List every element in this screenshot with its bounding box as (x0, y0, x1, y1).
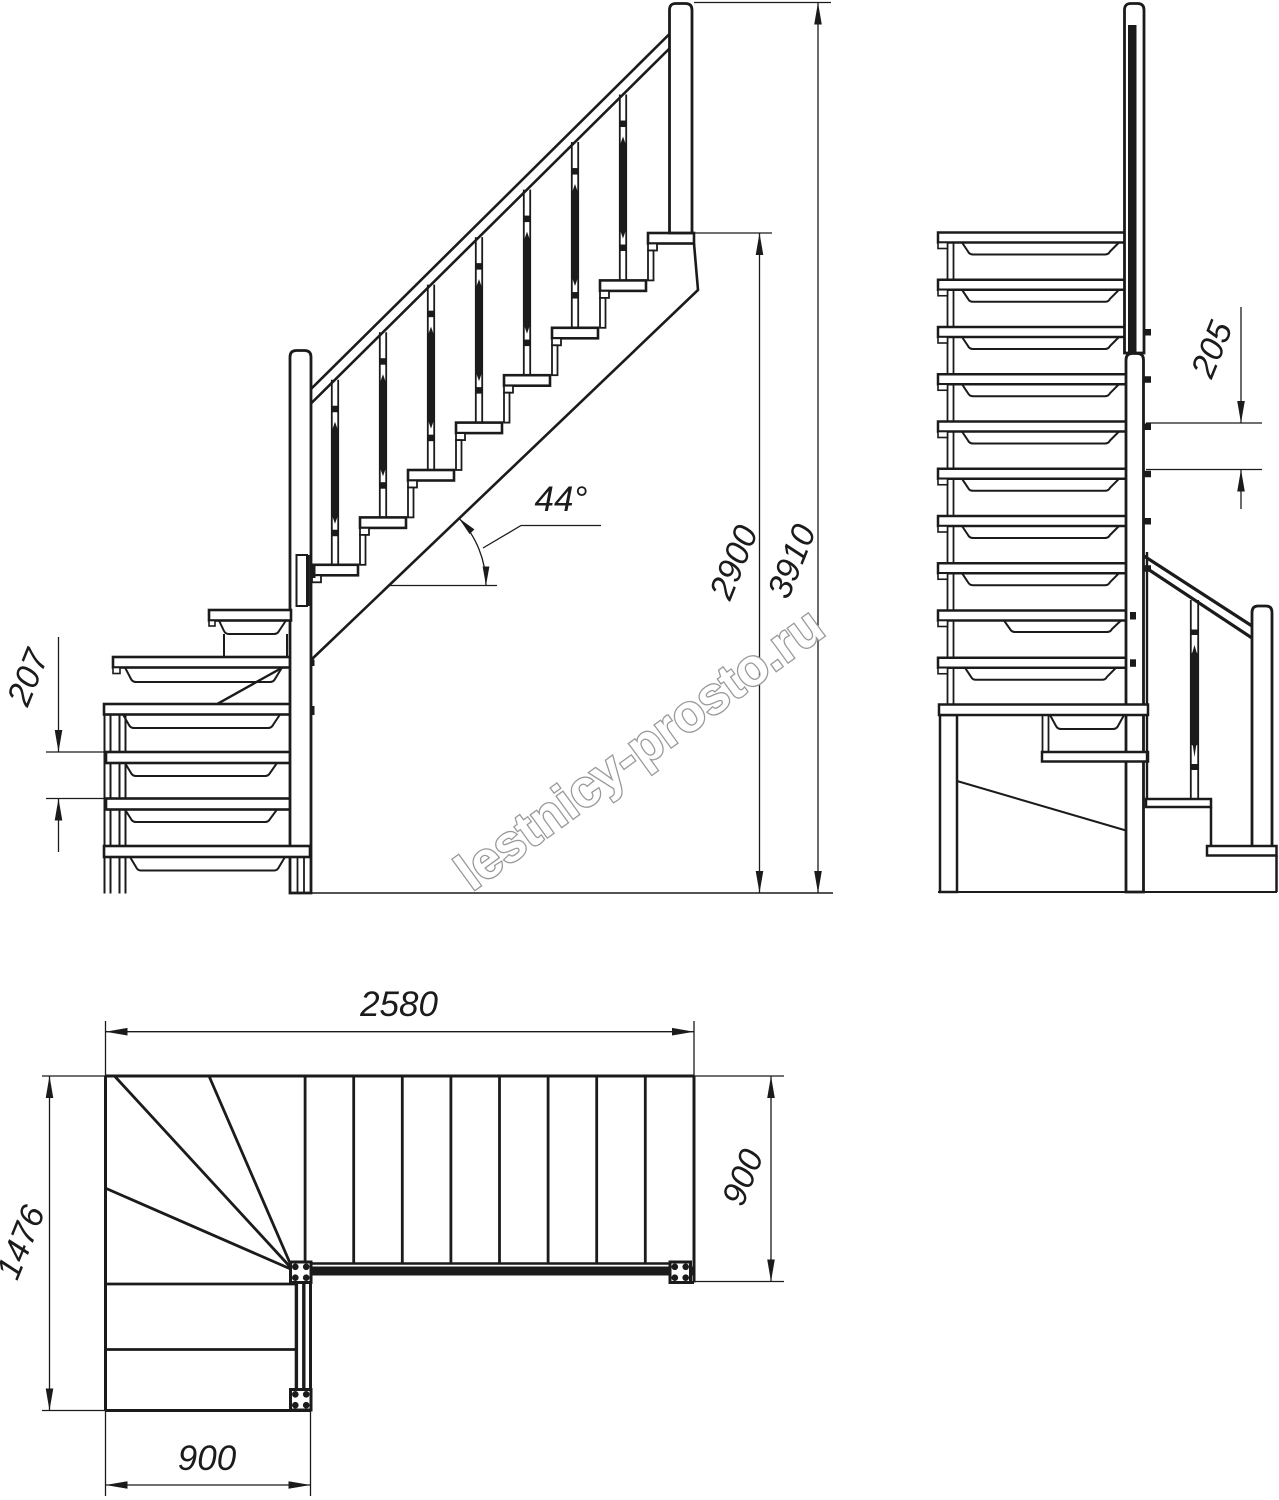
svg-text:2580: 2580 (359, 985, 438, 1024)
svg-text:900: 900 (178, 1439, 237, 1478)
svg-text:44°: 44° (535, 480, 588, 519)
